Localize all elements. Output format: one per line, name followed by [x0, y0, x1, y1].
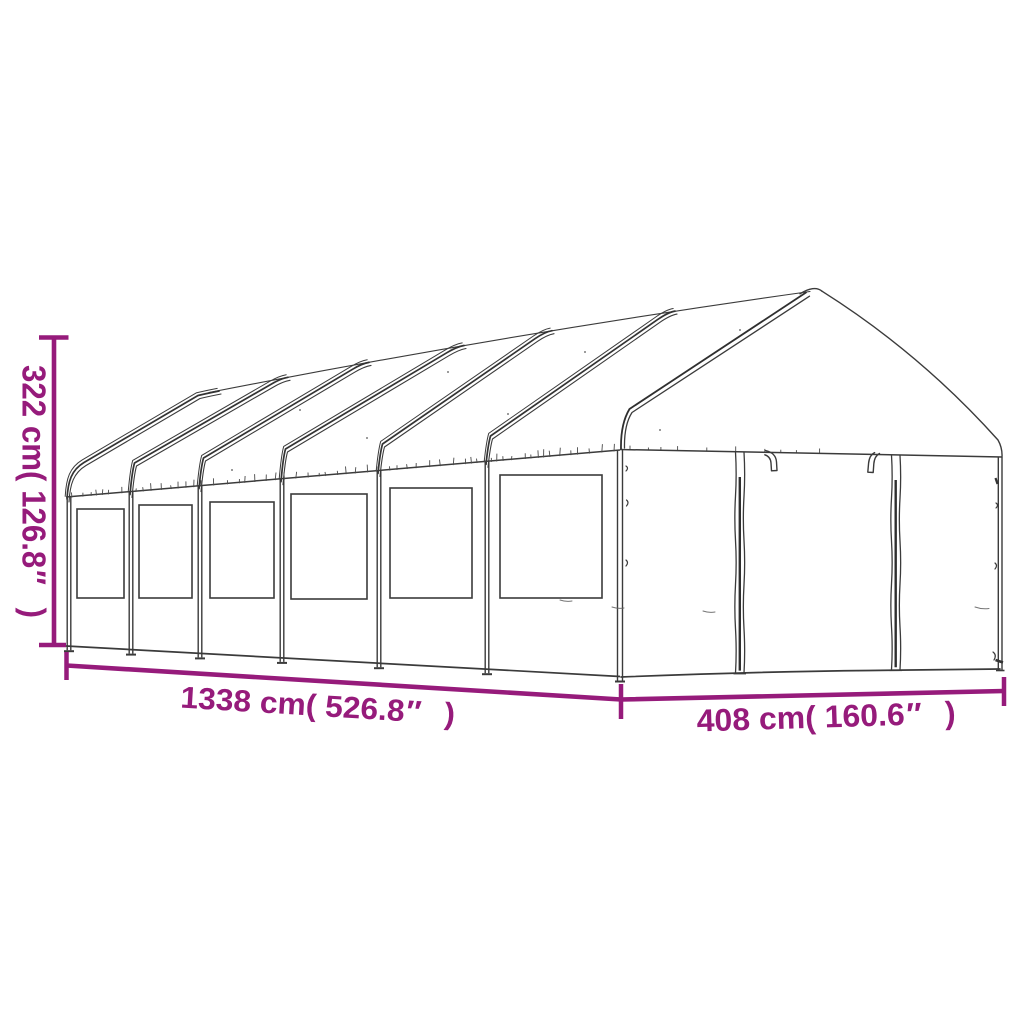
- svg-text:408 cm( 160.6″ ): 408 cm( 160.6″ ): [696, 694, 956, 738]
- svg-text:322 cm( 126.8″ ): 322 cm( 126.8″ ): [16, 365, 53, 618]
